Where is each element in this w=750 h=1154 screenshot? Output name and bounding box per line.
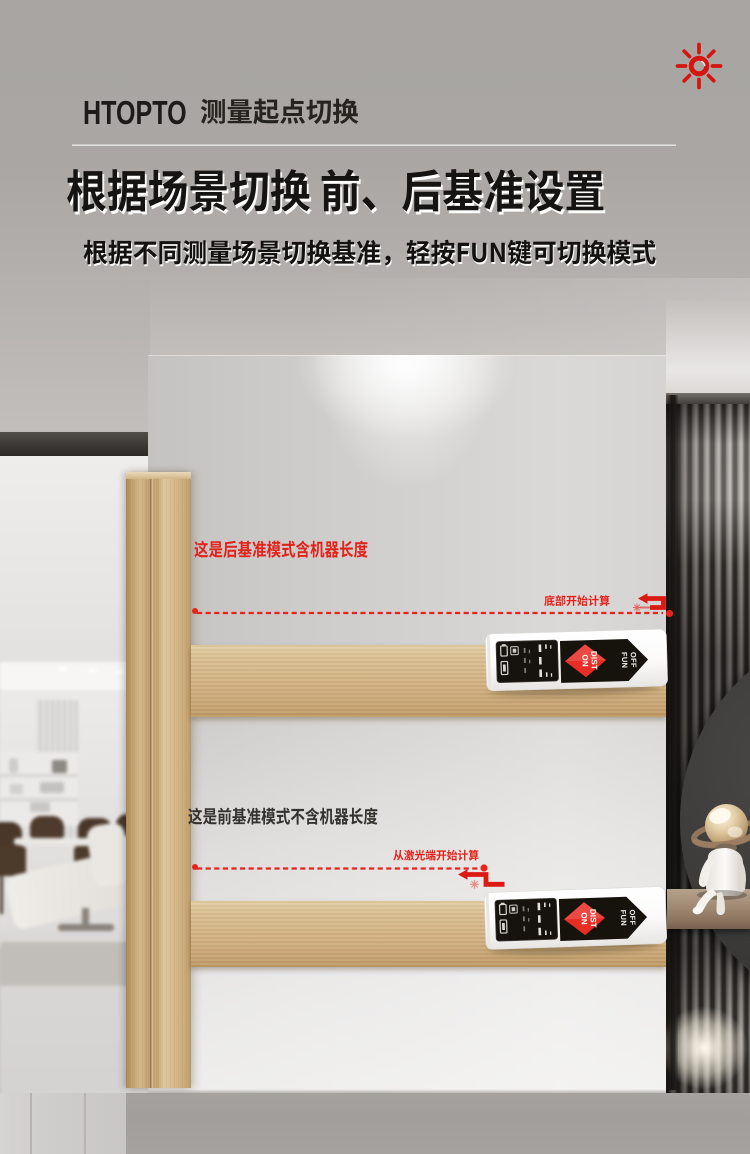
svg-text:ON: ON [580, 654, 589, 667]
svg-text:OFF: OFF [628, 909, 638, 925]
svg-text:FUN: FUN [620, 652, 629, 669]
svg-text:DIST: DIST [588, 909, 598, 928]
svg-text:FUN: FUN [619, 909, 629, 926]
svg-text:OFF: OFF [629, 652, 638, 668]
svg-text:DIST: DIST [589, 651, 599, 670]
svg-text:ON: ON [579, 912, 588, 925]
